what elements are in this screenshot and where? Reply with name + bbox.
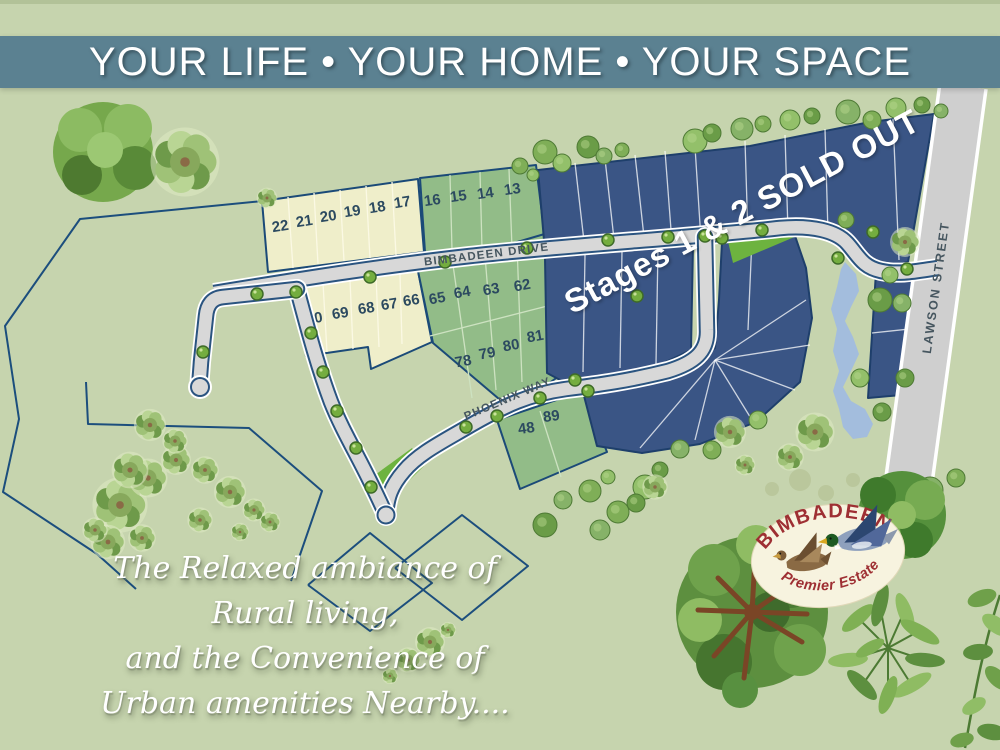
flower-tree-icon <box>191 456 219 484</box>
tagline-line-2: Rural living, <box>100 591 510 636</box>
lot-number-80: 80 <box>502 336 521 356</box>
flower-tree-icon <box>134 409 166 441</box>
road-tree-icon <box>631 290 643 302</box>
lot-number-13: 13 <box>503 180 522 199</box>
road-tree-icon <box>756 224 768 236</box>
road-tree-icon <box>331 405 343 417</box>
road-culdesac-stub <box>188 289 297 399</box>
lot-number-65: 65 <box>428 289 447 309</box>
round-tree-icon <box>553 154 571 172</box>
flower-tree-icon <box>714 416 746 448</box>
road-tree-icon <box>197 346 209 358</box>
water-layer <box>831 262 873 439</box>
large-tree-topleft <box>53 102 157 202</box>
round-tree-icon <box>947 469 965 487</box>
round-tree-icon <box>554 491 572 509</box>
lot-number-20: 20 <box>319 207 338 226</box>
round-tree-icon <box>851 369 869 387</box>
round-tree-icon <box>579 480 601 502</box>
sage-layer <box>765 469 860 501</box>
sage-bush-icon <box>818 485 834 501</box>
lot-number-22: 22 <box>271 217 290 236</box>
round-tree-icon <box>527 169 539 181</box>
tagline-line-1: The Relaxed ambiance of <box>100 546 510 591</box>
round-tree-icon <box>703 441 721 459</box>
road-tree-icon <box>901 263 913 275</box>
round-tree-icon <box>914 97 930 113</box>
pond <box>831 262 873 439</box>
flower-tree-icon <box>231 523 249 541</box>
lot-number-19: 19 <box>343 202 362 221</box>
road-tree-icon <box>832 252 844 264</box>
banner-title: YOUR LIFE • YOUR HOME • YOUR SPACE <box>89 40 911 85</box>
lot-number-66: 66 <box>402 291 421 310</box>
round-tree-icon <box>749 411 767 429</box>
lot-number-63: 63 <box>482 280 501 300</box>
foliage-right-edge <box>949 585 1000 750</box>
round-tree-icon <box>731 118 753 140</box>
flower-tree-icon <box>260 512 281 533</box>
road-tree-icon <box>582 385 594 397</box>
road-tree-icon <box>350 442 362 454</box>
round-tree-icon <box>804 108 820 124</box>
lot-number-16: 16 <box>423 191 442 210</box>
round-tree-icon <box>596 148 612 164</box>
round-tree-icon <box>671 440 689 458</box>
flower-tree-icon <box>735 455 756 476</box>
estate-map-page: 2221201918171615141370696867666564636278… <box>0 0 1000 750</box>
round-tree-icon <box>893 294 911 312</box>
round-tree-icon <box>627 494 645 512</box>
flower-tree-icon <box>187 507 212 532</box>
round-tree-icon <box>607 501 629 523</box>
road-end-flare <box>375 504 397 526</box>
road-tree-icon <box>867 226 879 238</box>
flower-tree-icon <box>642 474 667 499</box>
flower-tree-icon <box>257 188 278 209</box>
tagline-line-3: and the Convenience of <box>100 636 510 681</box>
round-tree-icon <box>512 158 528 174</box>
flower-tree-icon <box>162 428 187 453</box>
lot-number-15: 15 <box>449 187 468 206</box>
round-tree-icon <box>703 124 721 142</box>
sage-bush-icon <box>789 469 811 491</box>
road-tree-icon <box>290 286 302 298</box>
lot-number-68: 68 <box>357 299 376 318</box>
flower-tree-icon <box>82 517 107 542</box>
tagline: The Relaxed ambiance of Rural living, an… <box>100 546 510 726</box>
lot-number-18: 18 <box>368 198 387 217</box>
lot-number-48: 48 <box>517 419 536 438</box>
round-tree-icon <box>934 104 948 118</box>
flower-tree-icon <box>214 476 246 508</box>
round-tree-icon <box>590 520 610 540</box>
road-tree-icon <box>251 288 263 300</box>
round-tree-icon <box>780 110 800 130</box>
round-tree-icon <box>868 288 892 312</box>
round-tree-icon <box>755 116 771 132</box>
flower-tree-icon <box>776 443 804 471</box>
lot-number-89: 89 <box>542 407 561 426</box>
round-tree-icon <box>896 369 914 387</box>
lot-number-67: 67 <box>380 295 399 314</box>
lot-number-21: 21 <box>295 212 314 231</box>
round-tree-icon <box>615 143 629 157</box>
road-tree-icon <box>460 421 472 433</box>
flower-tree-icon <box>112 452 149 489</box>
road-tree-icon <box>317 366 329 378</box>
sage-bush-icon <box>765 482 779 496</box>
sage-bush-icon <box>846 473 860 487</box>
round-tree-icon <box>882 267 898 283</box>
lot-number-17: 17 <box>393 193 412 212</box>
flower-tree-icon <box>151 128 220 197</box>
lot-number-78: 78 <box>454 352 473 372</box>
flower-tree-icon <box>890 227 920 257</box>
round-tree-icon <box>838 212 854 228</box>
road-tree-icon <box>569 374 581 386</box>
lot-number-81: 81 <box>526 327 545 347</box>
road-tree-icon <box>305 327 317 339</box>
lot-number-69: 69 <box>331 304 350 323</box>
tagline-line-4: Urban amenities Nearby.... <box>100 681 510 726</box>
round-tree-icon <box>836 100 860 124</box>
round-tree-icon <box>873 403 891 421</box>
flower-tree-icon <box>795 412 834 451</box>
lot-number-62: 62 <box>513 276 532 296</box>
lot-number-79: 79 <box>478 344 497 364</box>
road-tree-icon <box>602 234 614 246</box>
road-tree-icon <box>365 481 377 493</box>
road-tree-icon <box>364 271 376 283</box>
round-tree-icon <box>601 470 615 484</box>
lot-number-14: 14 <box>476 184 496 203</box>
banner: YOUR LIFE • YOUR HOME • YOUR SPACE <box>0 36 1000 88</box>
round-tree-icon <box>533 513 557 537</box>
